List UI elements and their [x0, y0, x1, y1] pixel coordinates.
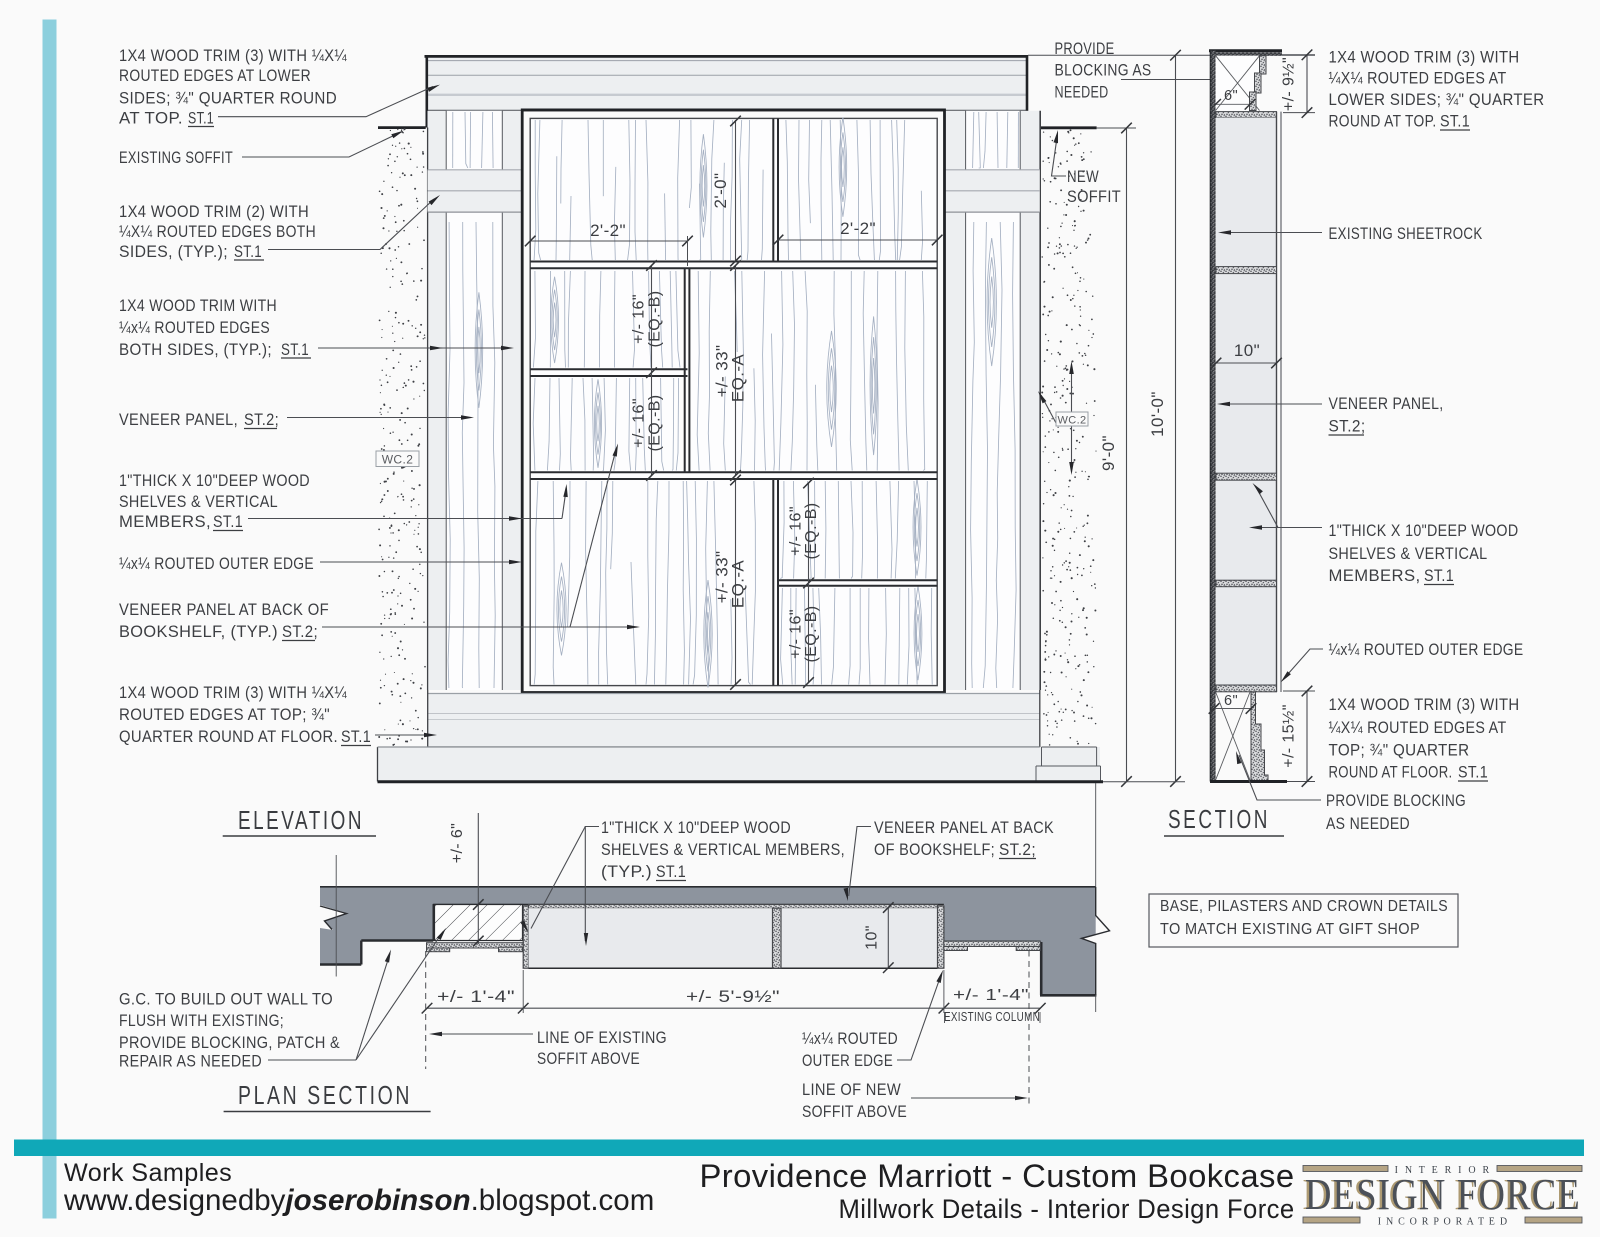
svg-text:EXISTING SHEETROCK: EXISTING SHEETROCK	[1329, 224, 1483, 243]
svg-text:ST.2;: ST.2;	[999, 840, 1036, 859]
svg-text:¼x¼ ROUTED EDGES: ¼x¼ ROUTED EDGES	[119, 318, 270, 337]
svg-text:EXISTING SOFFIT: EXISTING SOFFIT	[119, 148, 233, 167]
svg-text:ST.1: ST.1	[1458, 763, 1488, 782]
svg-text:ST.1: ST.1	[281, 340, 309, 359]
svg-text:¼x¼ ROUTED OUTER EDGE: ¼x¼ ROUTED OUTER EDGE	[119, 554, 314, 573]
svg-text:SHELVES & VERTICAL: SHELVES & VERTICAL	[119, 492, 278, 511]
svg-text:+/- 16": +/- 16"	[788, 506, 805, 556]
svg-text:1X4 WOOD TRIM (2) WITH: 1X4 WOOD TRIM (2) WITH	[119, 202, 309, 221]
svg-text:ST.1: ST.1	[1424, 566, 1454, 585]
svg-text:PLAN SECTION: PLAN SECTION	[238, 1080, 412, 1110]
svg-text:1X4 WOOD TRIM (3) WITH: 1X4 WOOD TRIM (3) WITH	[1329, 695, 1520, 714]
svg-text:2'-0": 2'-0"	[711, 173, 730, 209]
svg-text:SECTION: SECTION	[1168, 804, 1270, 834]
svg-text:+/- 9½": +/- 9½"	[1281, 57, 1298, 111]
svg-text:EQ.-A: EQ.-A	[729, 354, 748, 403]
svg-text:BOOKSHELF, (TYP.): BOOKSHELF, (TYP.)	[119, 622, 278, 641]
svg-text:¼X¼ ROUTED EDGES AT: ¼X¼ ROUTED EDGES AT	[1329, 718, 1507, 737]
svg-text:10": 10"	[1234, 341, 1260, 360]
svg-text:ST.1: ST.1	[341, 727, 371, 746]
svg-text:+/- 16": +/- 16"	[631, 294, 648, 344]
svg-text:VENEER PANEL,: VENEER PANEL,	[119, 410, 238, 429]
svg-text:9'-0": 9'-0"	[1099, 435, 1118, 471]
svg-text:(EQ.-B): (EQ.-B)	[803, 605, 820, 662]
svg-text:SIDES, (TYP.);: SIDES, (TYP.);	[119, 242, 228, 261]
svg-text:TOP; ¾" QUARTER: TOP; ¾" QUARTER	[1329, 741, 1470, 760]
svg-text:(EQ.-B): (EQ.-B)	[803, 502, 820, 559]
svg-text:ROUND AT FLOOR.: ROUND AT FLOOR.	[1329, 763, 1453, 782]
svg-text:ST.1: ST.1	[213, 512, 243, 531]
svg-text:LOWER SIDES; ¾" QUARTER: LOWER SIDES; ¾" QUARTER	[1329, 90, 1545, 109]
svg-text:QUARTER ROUND AT FLOOR.: QUARTER ROUND AT FLOOR.	[119, 727, 338, 746]
svg-text:EXISTING COLUMN: EXISTING COLUMN	[944, 1009, 1040, 1024]
svg-text:+/- 15½": +/- 15½"	[1281, 704, 1298, 768]
svg-text:1X4 WOOD TRIM (3) WITH: 1X4 WOOD TRIM (3) WITH	[1329, 48, 1520, 67]
svg-text:LINE OF EXISTING: LINE OF EXISTING	[537, 1028, 667, 1047]
svg-text:VENEER PANEL AT BACK: VENEER PANEL AT BACK	[874, 818, 1054, 837]
svg-text:EQ.-A: EQ.-A	[729, 560, 748, 609]
svg-text:SOFFIT: SOFFIT	[1067, 187, 1121, 206]
svg-text:2'-2": 2'-2"	[590, 221, 626, 240]
svg-text:1X4 WOOD TRIM (3) WITH ¼X¼: 1X4 WOOD TRIM (3) WITH ¼X¼	[119, 46, 347, 65]
svg-text:DESIGN FORCE: DESIGN FORCE	[1305, 1170, 1581, 1219]
svg-text:(EQ.-B): (EQ.-B)	[647, 290, 664, 347]
svg-text:Work Samples: Work Samples	[64, 1159, 232, 1187]
svg-text:6": 6"	[1224, 88, 1238, 104]
svg-text:NEW: NEW	[1067, 167, 1099, 186]
svg-text:OF BOOKSHELF;: OF BOOKSHELF;	[874, 840, 995, 859]
svg-text:WC.2: WC.2	[1057, 415, 1086, 427]
svg-text:WC.2: WC.2	[382, 453, 414, 467]
svg-text:+/- 16": +/- 16"	[788, 609, 805, 659]
svg-text:NEEDED: NEEDED	[1055, 83, 1109, 102]
svg-text:ST.1: ST.1	[1440, 112, 1470, 131]
svg-text:I N C O R P O R A T E D: I N C O R P O R A T E D	[1378, 1217, 1509, 1228]
svg-text:1X4 WOOD TRIM WITH: 1X4 WOOD TRIM WITH	[119, 296, 277, 315]
svg-text:+/- 5'-9½": +/- 5'-9½"	[686, 987, 780, 1006]
svg-text:1"THICK X 10"DEEP WOOD: 1"THICK X 10"DEEP WOOD	[1329, 521, 1519, 540]
svg-text:FLUSH WITH EXISTING;: FLUSH WITH EXISTING;	[119, 1011, 284, 1030]
svg-text:(EQ.-B): (EQ.-B)	[647, 394, 664, 451]
svg-text:+/- 16": +/- 16"	[631, 398, 648, 448]
svg-text:ROUTED EDGES AT TOP; ¾": ROUTED EDGES AT TOP; ¾"	[119, 705, 330, 724]
svg-text:REPAIR AS NEEDED: REPAIR AS NEEDED	[119, 1052, 262, 1071]
svg-text:1"THICK X 10"DEEP WOOD: 1"THICK X 10"DEEP WOOD	[601, 818, 791, 837]
svg-text:+/- 1'-4": +/- 1'-4"	[953, 987, 1029, 1004]
svg-text:¼x¼ ROUTED: ¼x¼ ROUTED	[802, 1029, 898, 1048]
svg-text:10'-0": 10'-0"	[1148, 391, 1167, 437]
svg-text:ST.1: ST.1	[234, 242, 262, 261]
svg-text:ROUND AT TOP.: ROUND AT TOP.	[1329, 112, 1437, 131]
svg-text:ELEVATION: ELEVATION	[238, 805, 364, 835]
svg-text:SHELVES & VERTICAL: SHELVES & VERTICAL	[1329, 544, 1488, 563]
svg-text:VENEER PANEL,: VENEER PANEL,	[1329, 394, 1444, 413]
svg-text:2'-2": 2'-2"	[840, 219, 876, 238]
svg-text:AT TOP.: AT TOP.	[119, 109, 183, 128]
svg-text:VENEER PANEL AT BACK OF: VENEER PANEL AT BACK OF	[119, 600, 329, 619]
svg-text:SIDES; ¾" QUARTER ROUND: SIDES; ¾" QUARTER ROUND	[119, 89, 337, 108]
svg-text:Millwork Details - Interior De: Millwork Details - Interior Design Force	[839, 1194, 1295, 1224]
svg-text:10": 10"	[864, 925, 881, 950]
svg-text:6": 6"	[1224, 693, 1238, 709]
svg-text:ROUTED EDGES AT LOWER: ROUTED EDGES AT LOWER	[119, 66, 311, 85]
svg-text:OUTER EDGE: OUTER EDGE	[802, 1051, 893, 1070]
svg-text:PROVIDE: PROVIDE	[1055, 39, 1115, 58]
svg-text:AS NEEDED: AS NEEDED	[1326, 814, 1410, 833]
svg-text:MEMBERS,: MEMBERS,	[1329, 566, 1421, 585]
svg-text:SOFFIT ABOVE: SOFFIT ABOVE	[802, 1102, 907, 1121]
svg-text:+/- 1'-4": +/- 1'-4"	[437, 987, 515, 1006]
svg-text:ST.1: ST.1	[656, 862, 686, 881]
svg-text:TO MATCH EXISTING AT GIFT SHOP: TO MATCH EXISTING AT GIFT SHOP	[1160, 921, 1420, 938]
svg-text:PROVIDE BLOCKING: PROVIDE BLOCKING	[1326, 791, 1466, 810]
svg-text:ST.2;: ST.2;	[244, 410, 279, 429]
svg-text:¼X¼ ROUTED EDGES AT: ¼X¼ ROUTED EDGES AT	[1329, 69, 1507, 88]
svg-text:MEMBERS,: MEMBERS,	[119, 512, 211, 531]
svg-text:Providence Marriott - Custom B: Providence Marriott - Custom Bookcase	[700, 1158, 1295, 1194]
svg-text:1X4 WOOD TRIM (3) WITH ¼X¼: 1X4 WOOD TRIM (3) WITH ¼X¼	[119, 683, 347, 702]
svg-text:LINE OF NEW: LINE OF NEW	[802, 1080, 901, 1099]
svg-text:www.designedbyjoserobinson.blo: www.designedbyjoserobinson.blogspot.com	[63, 1184, 654, 1217]
svg-text:ST.1: ST.1	[188, 109, 214, 128]
svg-text:PROVIDE BLOCKING, PATCH &: PROVIDE BLOCKING, PATCH &	[119, 1033, 340, 1052]
svg-text:1"THICK X 10"DEEP WOOD: 1"THICK X 10"DEEP WOOD	[119, 471, 310, 490]
svg-text:SOFFIT ABOVE: SOFFIT ABOVE	[537, 1049, 640, 1068]
svg-text:SHELVES & VERTICAL MEMBERS,: SHELVES & VERTICAL MEMBERS,	[601, 840, 845, 859]
svg-text:+/- 6": +/- 6"	[449, 823, 466, 864]
svg-text:BLOCKING AS: BLOCKING AS	[1055, 61, 1152, 80]
svg-text:BOTH SIDES, (TYP.);: BOTH SIDES, (TYP.);	[119, 340, 272, 359]
svg-text:ST.2;: ST.2;	[1329, 417, 1366, 436]
svg-text:BASE, PILASTERS AND CROWN DETA: BASE, PILASTERS AND CROWN DETAILS	[1160, 898, 1448, 915]
svg-text:¼X¼ ROUTED EDGES BOTH: ¼X¼ ROUTED EDGES BOTH	[119, 222, 316, 241]
svg-text:G.C. TO BUILD OUT WALL TO: G.C. TO BUILD OUT WALL TO	[119, 990, 333, 1009]
svg-text:ST.2;: ST.2;	[282, 622, 318, 641]
svg-text:¼x¼ ROUTED OUTER EDGE: ¼x¼ ROUTED OUTER EDGE	[1329, 640, 1524, 659]
svg-text:(TYP.): (TYP.)	[601, 862, 652, 881]
